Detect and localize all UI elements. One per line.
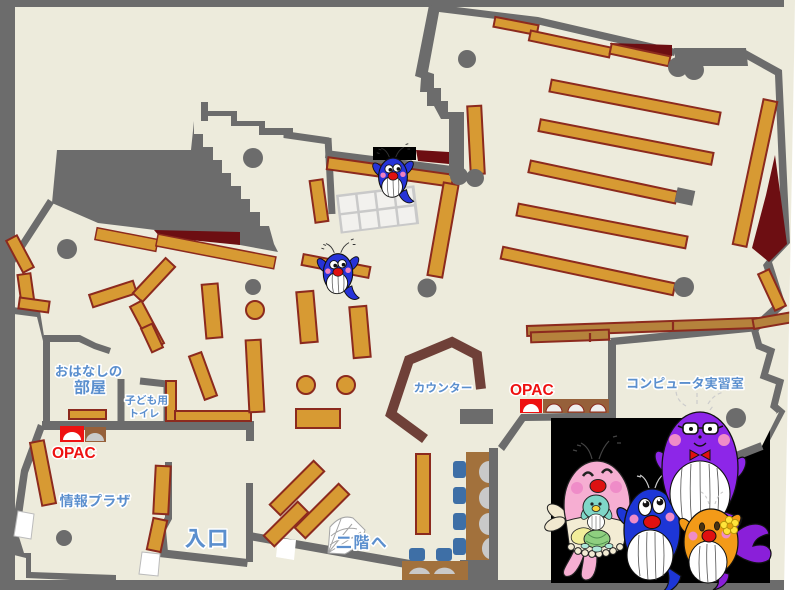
svg-text:OPAC: OPAC bbox=[52, 445, 96, 462]
svg-text:OPAC: OPAC bbox=[510, 382, 554, 399]
